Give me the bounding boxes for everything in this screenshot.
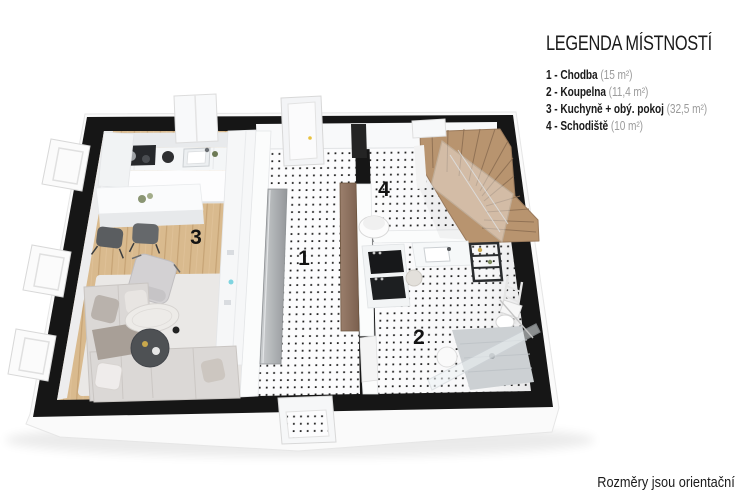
left-counter [98, 132, 134, 188]
small-appliance [229, 280, 234, 285]
shower-stool [437, 347, 457, 367]
legend-title: LEGENDA MÍSTNOSTÍ [546, 32, 712, 56]
window [8, 329, 56, 381]
faucet [205, 148, 209, 152]
doormat [286, 410, 329, 438]
legend-item-area: (32,5 m²) [667, 101, 707, 116]
legend-item-area: (15 m²) [600, 67, 632, 82]
legend: LEGENDA MÍSTNOSTÍ 1 - Chodba (15 m²) 2 -… [546, 32, 712, 134]
floor-lamp [173, 327, 180, 334]
legend-item-area: (10 m²) [611, 118, 643, 133]
door-handle [308, 136, 312, 140]
legend-item: 4 - Schodiště (10 m²) [546, 117, 712, 134]
room-label-bathroom: 2 [413, 326, 425, 349]
kettle [162, 151, 174, 163]
pan [142, 155, 150, 163]
room-label-living: 3 [190, 226, 202, 249]
page: 1 2 3 4 LEGENDA MÍSTNOSTÍ 1 - Chodba (15… [0, 0, 749, 500]
round-table [131, 329, 169, 367]
legend-item-label: 4 - Schodiště [546, 118, 608, 133]
room-label-stairs: 4 [378, 178, 390, 201]
legend-item-label: 1 - Chodba [546, 67, 598, 82]
entrance-vestibule [278, 396, 336, 444]
island-plant [138, 195, 146, 203]
kitchen-island [96, 184, 204, 228]
room-label-hallway: 1 [298, 247, 310, 270]
legend-item: 3 - Kuchyně + obý. pokoj (32,5 m²) [546, 100, 712, 117]
plant [212, 151, 218, 157]
water-heater [359, 216, 389, 238]
window [23, 245, 71, 297]
basin [424, 247, 450, 262]
legend-item-area: (11,4 m²) [609, 84, 649, 99]
legend-item: 2 - Koupelna (11,4 m²) [546, 83, 712, 100]
disclaimer-text: Rozměry jsou orientační [598, 474, 735, 491]
legend-item-label: 2 - Koupelna [546, 84, 606, 99]
top-window-sill [412, 119, 446, 138]
legend-item: 1 - Chodba (15 m²) [546, 66, 712, 83]
window [42, 139, 90, 191]
bath-door [360, 336, 378, 382]
laundry-basket [406, 270, 422, 286]
legend-item-label: 3 - Kuchyně + obý. pokoj [546, 101, 664, 116]
hall-wardrobe-brown [340, 183, 359, 331]
